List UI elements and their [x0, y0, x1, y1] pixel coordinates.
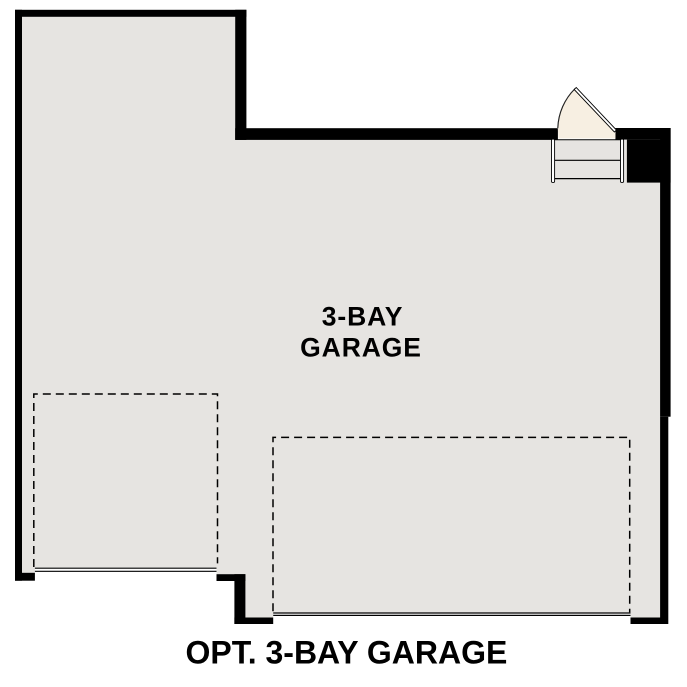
svg-text:GARAGE: GARAGE: [300, 333, 422, 363]
svg-text:3-BAY: 3-BAY: [322, 302, 404, 332]
svg-text:OPT. 3-BAY GARAGE: OPT. 3-BAY GARAGE: [185, 634, 507, 670]
